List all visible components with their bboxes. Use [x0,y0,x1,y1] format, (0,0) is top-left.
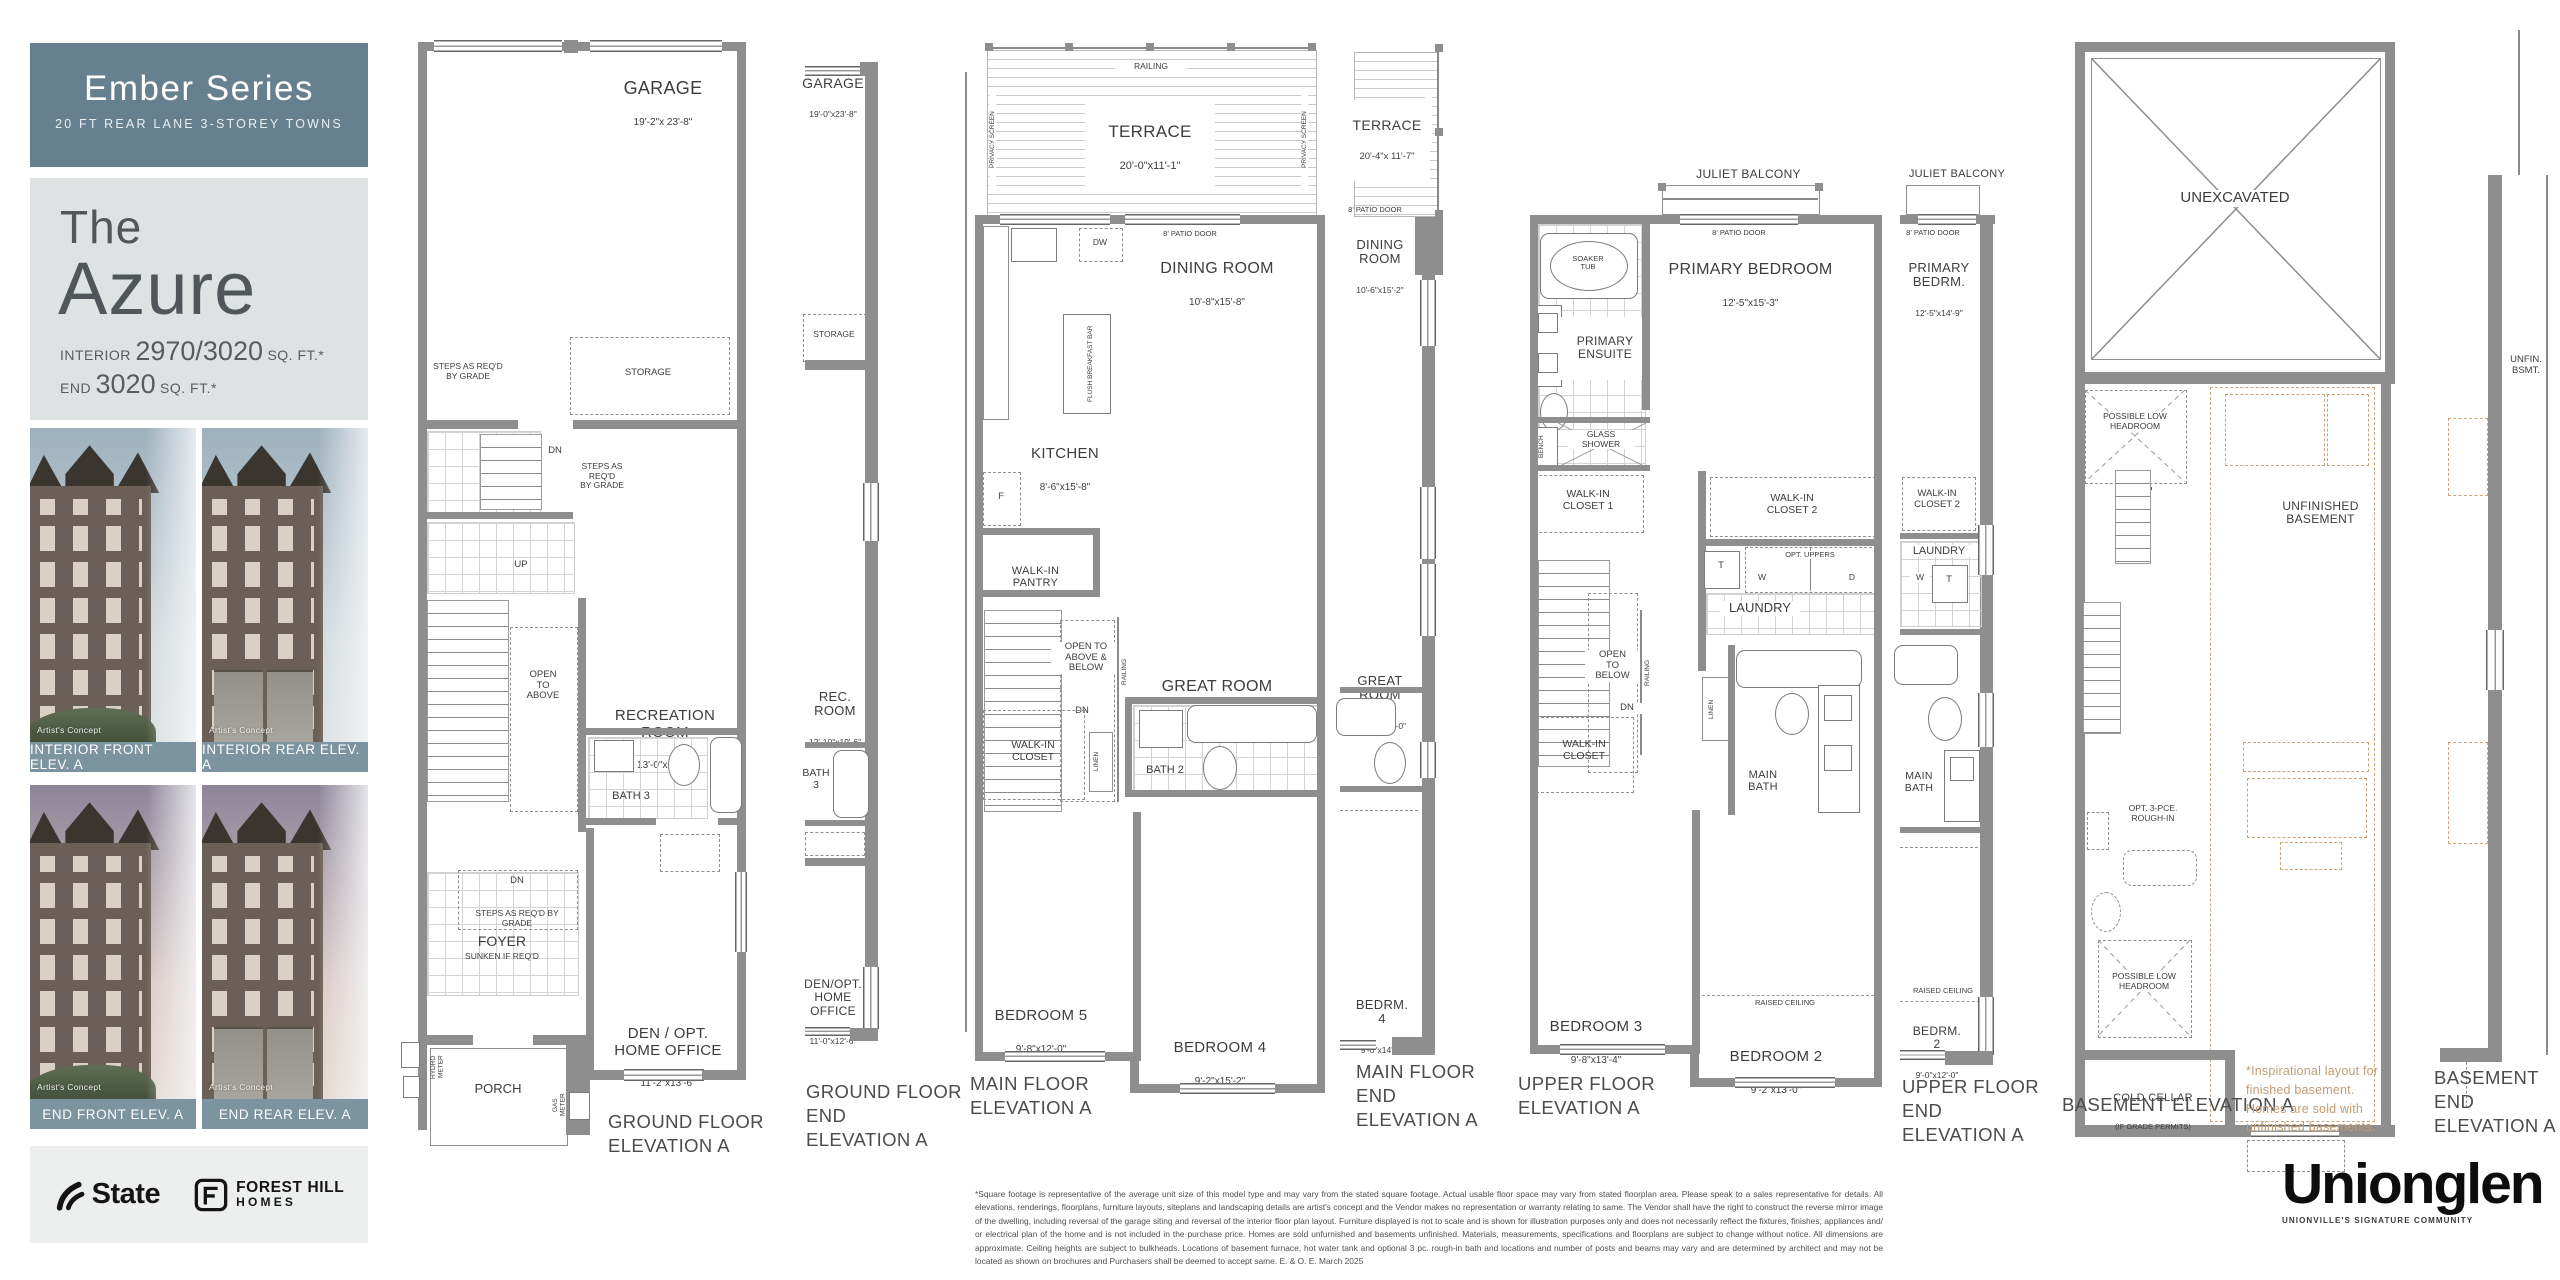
window [1420,742,1436,778]
dn-label: DN [1612,703,1642,714]
wall-segment [573,420,746,429]
dining-room-label: DINING ROOM 10'-6"x15'-2" [1342,220,1418,313]
stairs [480,434,542,510]
ceiling-break-line [1340,810,1418,811]
photo-caption: END FRONT ELEV. A [30,1099,196,1129]
wall-segment [1692,810,1700,1050]
room-name: BEDROOM 5 [977,1008,1105,1025]
sink [1824,695,1852,721]
table-outline [2280,842,2342,870]
wall-segment [975,528,1100,535]
furniture-outline [2448,742,2488,844]
opt-uppers-label: OPT. UPPERS [1760,551,1860,559]
wall-segment [1133,812,1141,1057]
room-name: BEDRM. 2 [1904,1025,1970,1052]
rough-in-shower-outline [2087,812,2109,850]
fridge-label: F [983,492,1019,503]
walk-in-closet-label: WALK-IN CLOSET [1544,739,1624,763]
privacy-screen-label: PRIVACY SCREEN [989,90,996,190]
room-name: BEDROOM 3 [1530,1019,1662,1036]
open-to-above-outline [510,627,578,812]
end-wall [2488,175,2502,1055]
storage-label: STORAGE [805,330,863,340]
basement-end-caption: BASEMENT END ELEVATION A [2434,1066,2556,1138]
room-dims: 10'-8"x15'-8" [1147,297,1287,308]
room-dims: 8'-6"x15'-8" [1005,482,1125,493]
upper-floor-end-plan: JULIET BALCONY 10'-0"x2'-0" 8' PATIO DOO… [1900,105,2065,1140]
wall-segment [1642,215,1650,410]
possible-low-headroom-label: POSSIBLE LOW HEADROOM [2101,972,2187,991]
railing-line [1640,610,1642,755]
photo-end-rear: Artist's Concept END REAR ELEV. A [202,785,368,1129]
open-to-above-label: OPEN TO ABOVE [513,670,573,702]
end-sqft-unit: SQ. FT.* [160,380,217,396]
unexcavated-label: UNEXCAVATED [2170,190,2300,207]
rough-in-label: OPT. 3-PCE. ROUGH-IN [2110,804,2196,823]
room-name: DINING ROOM [1147,260,1287,278]
bath3-label: BATH 3 [596,790,666,802]
artists-concept-credit: Artist's Concept [37,725,101,735]
wall-segment [1530,465,1650,471]
state-wordmark: State [92,1178,160,1211]
basement-end-plan: UNFIN. BSMT. [2440,30,2560,1145]
wall-segment [805,360,878,370]
bathtub [833,750,869,818]
interior-label: INTERIOR [60,347,131,363]
unit-edge-line [965,72,967,1032]
room-dims: 12'-5"x14'-9" [1900,309,1978,319]
wall-segment [1690,1045,1699,1087]
ensuite-label: PRIMARY ENSUITE [1560,317,1650,380]
interior-sqft-value: 2970/3020 [135,336,263,366]
upper-floor-end-caption: UPPER FLOOR END ELEVATION A [1902,1075,2039,1147]
wall-segment [1392,1037,1435,1055]
toilet [1928,697,1962,741]
room-name: GARAGE [588,78,738,98]
storage-label: STORAGE [588,368,708,379]
wall-segment [805,742,878,748]
balcony-rail-line [1662,198,1818,200]
series-subtitle: 20 FT REAR LANE 3-STOREY TOWNS [30,117,368,131]
railing-post [985,43,993,51]
wall-segment [805,820,878,826]
dining-room-label: DINING ROOM 10'-8"x15'-8" [1147,242,1287,326]
sink [1538,313,1558,333]
soaker-tub-label: SOAKER TUB [1558,255,1618,272]
raised-ceiling-label: RAISED CEILING [1730,999,1840,1007]
breakfast-bar-label: FLUSH BREAKFAST BAR [1087,322,1094,406]
possible-low-headroom-label: POSSIBLE LOW HEADROOM [2089,412,2181,431]
patio-door-label: 8' PATIO DOOR [1706,229,1772,237]
terrace-label: TERRACE 20'-4"x 11'-7" [1344,100,1430,181]
closet-outline [805,832,865,856]
wall-segment [1130,1052,1139,1092]
forest-hill-line2: HOMES [236,1196,344,1209]
walk-in-closet2-label: WALK-IN CLOSET 2 [1748,493,1836,517]
ceiling-break-line [1900,847,1978,848]
room-name: BEDROOM 4 [1155,1040,1285,1057]
garage-label: GARAGE 19'-0"x23'-8" [801,58,865,138]
end-wall [865,72,878,1037]
wall-segment [1698,539,1882,546]
artists-concept-credit: Artist's Concept [209,725,273,735]
window [1978,997,1994,1055]
room-dims: 10'-6"x15'-2" [1342,286,1418,296]
raised-ceiling-label: RAISED CEILING [1908,987,1978,995]
steps-note: STEPS AS REQ'D BY GRADE [568,462,636,491]
room-dims: 12'-5"x15'-3" [1668,298,1833,309]
patio-door [1680,214,1798,225]
wall-segment [1900,629,1980,635]
railing-post [1435,44,1443,52]
railing-label: RAILING [1644,645,1651,701]
bathtub [1736,650,1862,688]
wall-segment [718,818,746,825]
rough-in-toilet-outline [2091,892,2121,932]
wall-segment [2440,1048,2502,1062]
room-name: DEN / OPT. HOME OFFICE [598,1026,738,1060]
photo-interior-front: Artist's Concept INTERIOR FRONT ELEV. A [30,428,196,772]
unionglen-logo: Unionglen UNIONVILLE'S SIGNATURE COMMUNI… [2282,1156,2543,1225]
railing-post [1658,183,1666,191]
forest-hill-line1: FOREST HILL [236,1180,344,1196]
room-name: PRIMARY ENSUITE [1560,335,1650,362]
series-header: Ember Series 20 FT REAR LANE 3-STOREY TO… [30,43,368,167]
adjacent-unit-fade [146,428,196,742]
room-name: DEN/OPT. HOME OFFICE [801,978,865,1018]
dishwasher-label: DW [1079,238,1121,248]
bathtub [1336,698,1396,736]
linen-label: LINEN [1093,738,1100,784]
stairs [2083,602,2121,734]
window [2486,630,2504,690]
window [1560,1044,1665,1055]
walk-in-closet1-label: WALK-IN CLOSET 1 [1548,489,1628,513]
sink [1824,745,1852,771]
railing-post [1227,43,1235,51]
laundry-label: LAUNDRY [1720,601,1800,616]
terrace-label: TERRACE 20'-0"x11'-1" [1085,104,1215,190]
wall-segment [1874,215,1882,1087]
wall-segment [418,420,518,429]
window [1420,487,1436,559]
main-floor-end-caption: MAIN FLOOR END ELEVATION A [1356,1060,1478,1132]
end-wall [1980,215,1993,1065]
porch-label: PORCH [456,1082,540,1097]
furniture-outline [2448,418,2488,496]
wall-segment [586,818,656,825]
washer-label: W [1910,573,1930,583]
room-name: PRIMARY BEDRM. [1900,261,1978,290]
model-name: Azure [58,252,368,326]
room-dims: 20'-0"x11'-1" [1085,160,1215,172]
wall-segment [1125,697,1132,797]
photo-end-front: Artist's Concept END FRONT ELEV. A [30,785,196,1129]
wall-segment [1317,215,1325,1093]
tank-label: T [1932,575,1966,586]
wall-segment [564,40,578,53]
photo-caption: INTERIOR FRONT ELEV. A [30,742,196,772]
laundry-label: LAUNDRY [1908,545,1970,557]
series-title: Ember Series [30,69,368,109]
main-floor-end-plan: RAILING TERRACE 20'-4"x 11'-7" 8' PATIO … [1340,42,1505,1122]
photo-caption: END REAR ELEV. A [202,1099,368,1129]
upper-floor-caption: UPPER FLOOR ELEVATION A [1518,1072,1655,1120]
wall-segment [1340,786,1422,792]
kitchen-sink [1011,228,1057,262]
room-name: UNFINISHED BASEMENT [2273,500,2368,527]
wall-segment [805,858,878,866]
model-panel: The Azure INTERIOR 2970/3020 SQ. FT.* EN… [30,178,368,420]
sink [1538,353,1558,373]
garage-label: GARAGE 19'-2"x 23'-8" [588,60,738,146]
sofa-outline [2225,394,2325,466]
state-logo: State [54,1178,160,1211]
den-label: DEN/OPT. HOME OFFICE 11'-0"x12'-6" [801,960,865,1065]
end-sqft-value: 3020 [96,369,156,399]
bedroom2-label: BEDROOM 2 9'-2"x13'-0" [1705,1031,1847,1114]
railing-post [1435,128,1443,136]
wall-segment [586,828,594,1070]
wall-segment [578,598,586,832]
room-name: MAIN BATH [1898,771,1940,795]
room-name: KITCHEN [1005,446,1125,463]
wall-segment [1900,533,1980,539]
glass-shower-label: GLASS SHOWER [1568,430,1634,449]
unexcavated-x [2091,58,2381,360]
window [1180,1083,1275,1094]
room-dims: 19'-0"x23'-8" [801,110,865,120]
ground-floor-caption: GROUND FLOOR ELEVATION A [608,1110,764,1158]
wall-segment [566,1045,590,1135]
wall-segment [1093,528,1100,597]
room-sub: (IF GRADE PERMITS) [2093,1123,2213,1131]
closet-outline [660,834,720,872]
walk-in-closet2-label: WALK-IN CLOSET 2 [1904,489,1970,510]
patio-door-label: 8' PATIO DOOR [1342,206,1408,214]
garage-door [434,40,562,52]
model-prefix: The [60,206,368,250]
wall-segment [2385,42,2395,382]
room-name: BEDRM. 4 [1342,998,1422,1027]
raised-ceiling-line [1702,995,1874,996]
unionglen-wordmark: Unionglen [2282,1156,2543,1213]
window [624,1069,704,1081]
wall-segment [533,1035,588,1045]
interior-sqft-unit: SQ. FT.* [267,347,324,363]
wall-segment [418,1035,473,1045]
gas-meter-label: GAS METER [552,1082,567,1128]
wall-segment [975,215,983,1061]
wall-segment [2075,42,2395,52]
room-dims: 19'-2"x 23'-8" [588,117,738,128]
room-name: GARAGE [801,76,865,92]
railing-post [1065,43,1073,51]
steps-note: STEPS AS REQ'D BY GRADE [422,362,514,381]
railing-label: RAILING [1121,642,1128,702]
basement-note: *Inspirational layout for finished basem… [2246,1062,2378,1137]
juliet-balcony [1662,185,1820,215]
wall-segment [1530,215,1538,1053]
railing-line [1117,617,1119,802]
window [1420,564,1436,636]
main-floor-caption: MAIN FLOOR ELEVATION A [970,1072,1092,1120]
juliet-balcony [1906,185,1980,215]
toilet [1203,746,1237,790]
ground-floor-end-caption: GROUND FLOOR END ELEVATION A [806,1080,962,1152]
window [1978,693,1994,747]
linen-closet [1702,677,1730,741]
room-name: MAIN BATH [1732,769,1794,794]
wall-segment [702,1070,746,1080]
up-label: UP [506,560,536,571]
upper-floor-plan: JULIET BALCONY 10'-0"x2'-0" 8' PATIO DOO… [1530,105,1882,1105]
hydro-meter [401,1042,420,1068]
railing-post [1146,43,1154,51]
kitchen-counter [983,226,1009,420]
toilet [668,744,700,786]
media-console-outline [2243,742,2369,772]
room-dims: 20'-4"x 11'-7" [1344,152,1430,163]
window [1000,214,1110,225]
toilet [1374,742,1406,784]
room-name: REC. ROOM [803,690,867,719]
unit-edge-line [2546,175,2548,1055]
wall-segment [1340,687,1422,693]
stairs [2115,470,2151,564]
floorplan-brochure-page: Ember Series 20 FT REAR LANE 3-STOREY TO… [0,0,2560,1280]
foyer-label: FOYER [456,934,548,950]
artists-concept-credit: Artist's Concept [37,1082,101,1092]
bath3-label: BATH 3 [801,768,831,792]
bench-label: BENCH [1538,431,1545,463]
wall-segment [2075,42,2085,1137]
forest-hill-f-icon [194,1178,228,1212]
steps-note: STEPS AS REQ'D BY GRADE [460,909,574,928]
linen-label: LINEN [1708,685,1715,733]
toilet [1775,693,1809,735]
window [1340,1040,1376,1050]
room-dims: 9'-8"x13'-4" [1530,1055,1662,1066]
vanity-sink [1139,710,1183,748]
room-name: TERRACE [1344,118,1430,134]
ground-floor-end-plan: GARAGE 19'-0"x23'-8" STORAGE REC. ROOM 1… [805,42,975,1102]
foyer-sub-label: SUNKEN IF REQ'D [456,952,548,962]
railing-label: RAILING [1115,62,1187,72]
photo-interior-rear: Artist's Concept INTERIOR REAR ELEV. A [202,428,368,772]
window [863,967,879,1029]
main-bath-label: MAIN BATH [1732,751,1794,811]
window [1420,280,1436,346]
room-name: JULIET BALCONY [1676,168,1821,181]
landing-tile [427,522,575,594]
den-label: DEN / OPT. HOME OFFICE 11'-2"x13'-6" [598,1008,738,1108]
wall-segment [1900,827,1980,833]
building-render [30,486,151,742]
window [1978,525,1994,575]
forest-hill-logo: FOREST HILL HOMES [194,1178,344,1212]
wall-segment [2225,1050,2235,1130]
wall-segment [418,42,427,1130]
primary-bedroom-label: PRIMARY BEDRM. 12'-5"x14'-9" [1900,243,1978,336]
tank-label: T [1704,561,1738,572]
walk-in-closet-label: WALK-IN CLOSET [991,740,1075,764]
room-name: JULIET BALCONY [1902,168,2012,180]
railing-post [1815,183,1823,191]
end-label: END [60,380,91,396]
garage-door [590,40,722,52]
wall-segment [586,728,746,735]
wall-segment [975,590,1100,597]
wall-segment [2075,1050,2233,1060]
window [735,872,747,952]
wall-segment [427,512,573,519]
sink [1950,757,1974,781]
adjacent-unit-fade [318,785,368,1099]
main-bath-label: MAIN BATH [1898,753,1940,812]
wall-segment [2075,372,2395,384]
room-name: DINING ROOM [1342,238,1418,267]
dn-label: DN [502,876,532,887]
porch-outline [430,1048,568,1146]
patio-door [1125,214,1240,225]
pantry-label: WALK-IN PANTRY [983,547,1088,607]
hydro-meter-label: HYDRO METER [430,1042,445,1092]
bathtub [1894,645,1958,685]
basement-plan: UNEXCAVATED POSSIBLE LOW HEADROOM UP UNF… [2075,42,2395,1152]
legal-disclaimer: *Square footage is representative of the… [975,1188,1883,1269]
dn-label: DN [540,446,570,457]
room-name: WALK-IN PANTRY [983,565,1088,590]
bath2-label: BATH 2 [1133,764,1197,776]
window [1005,1051,1105,1062]
chair-outline [2327,394,2369,466]
raised-ceiling-line [1900,1001,1980,1002]
wall-segment [1125,790,1325,797]
gas-meter [569,1092,590,1120]
rough-in-tub-outline [2123,850,2197,886]
wall-segment [2381,382,2391,1137]
wall-segment [1125,697,1325,704]
privacy-screen-label: PRIVACY SCREEN [1301,90,1308,190]
building-render [30,843,151,1099]
forest-hill-wordmark: FOREST HILL HOMES [236,1180,344,1209]
stairs [427,600,509,802]
window [1900,1050,1945,1060]
adjacent-unit-fade [318,428,368,742]
kitchen-label: KITCHEN 8'-6"x15'-8" [1005,428,1125,511]
dryer-label: D [1842,573,1862,583]
room-name: GREAT ROOM [1147,678,1287,696]
patio-door-label: 8' PATIO DOOR [1157,230,1223,238]
open-label: OPEN TO ABOVE & BELOW [1051,642,1121,674]
window [805,1027,850,1036]
unit-edge-line [2518,30,2520,175]
window [863,483,879,541]
open-to-below-label: OPEN TO BELOW [1585,650,1640,682]
washer-label: W [1752,573,1772,583]
interior-sqft-line: INTERIOR 2970/3020 SQ. FT.* [60,336,368,367]
patio-door-label: 8' PATIO DOOR [1900,229,1966,237]
bathtub [1187,705,1317,743]
photo-caption: INTERIOR REAR ELEV. A [202,742,368,772]
vanity-sink [594,740,634,772]
wall-segment [850,1028,878,1041]
artists-concept-credit: Artist's Concept [209,1082,273,1092]
window [1735,1077,1835,1088]
room-name: TERRACE [1085,122,1215,141]
main-floor-plan: RAILING PRIVACY SCREEN PRIVACY SCREEN TE… [975,42,1325,1102]
